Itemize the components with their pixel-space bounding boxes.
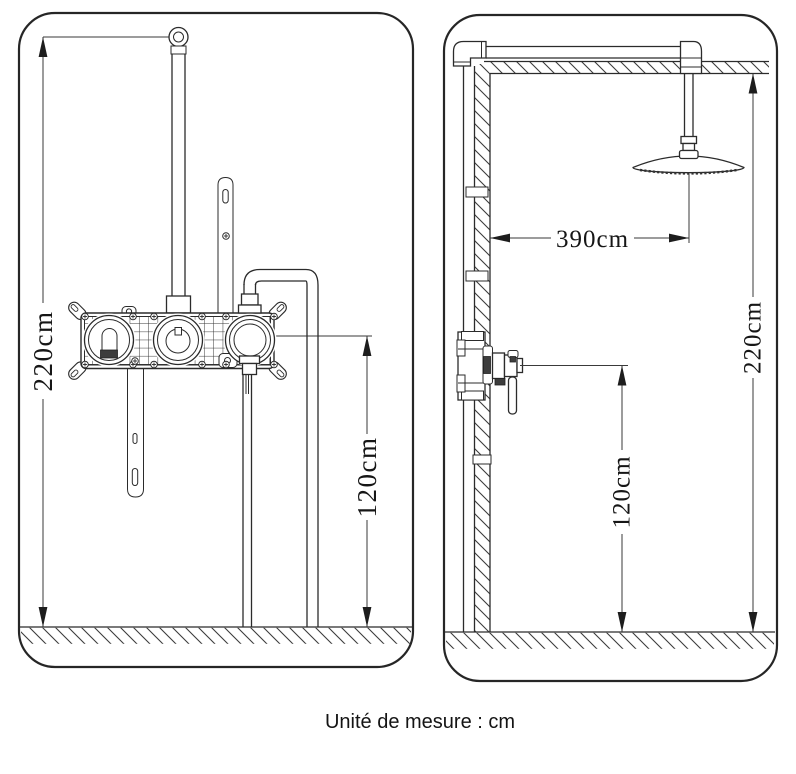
cartridge-dark xyxy=(484,357,491,374)
cartridge-stem xyxy=(102,329,117,353)
screw-icon xyxy=(199,313,206,320)
left-valve-port xyxy=(85,316,134,365)
side-dimension-valve-height: 120cm xyxy=(520,366,636,633)
screw-icon xyxy=(82,361,89,368)
screw-icon xyxy=(271,361,278,368)
screw-icon xyxy=(271,313,278,320)
pipe-clip xyxy=(473,455,491,464)
arrowhead-up-icon xyxy=(618,366,627,386)
valve-under-dark xyxy=(495,379,505,386)
elbow-inner xyxy=(306,281,307,286)
lower-strap xyxy=(128,368,144,497)
elbow-inner xyxy=(256,281,262,285)
valve-head-segment xyxy=(493,353,505,379)
pipe-coupling-base xyxy=(239,305,262,313)
side-dimension-total-height: 220cm xyxy=(740,74,767,633)
screw-icon xyxy=(223,233,230,240)
dimension-label-120: 120cm xyxy=(352,437,382,518)
dimension-label-390: 390cm xyxy=(556,226,629,253)
pipe-clip xyxy=(466,187,488,197)
arrowhead-up-icon xyxy=(749,74,758,94)
screw-icon xyxy=(223,313,230,320)
dimension-label-220: 220cm xyxy=(28,311,58,392)
arrowhead-left-icon xyxy=(490,234,510,243)
screw-icon xyxy=(151,313,158,320)
spindle-notch xyxy=(175,328,182,336)
screw-icon xyxy=(82,313,89,320)
riser-coupling xyxy=(167,296,191,313)
arrowhead-up-icon xyxy=(39,37,48,57)
unit-caption: Unité de mesure : cm xyxy=(325,711,515,733)
side-view-panel: 390cm 220cm 120cm xyxy=(444,15,777,681)
pipe-coupling xyxy=(242,294,259,305)
arrowhead-down-icon xyxy=(618,612,627,632)
diverter-dark xyxy=(510,357,516,363)
upper-strap xyxy=(218,178,233,314)
front-floor-hatch xyxy=(21,628,411,644)
elbow-outer xyxy=(244,270,260,286)
dimension-label-120: 120cm xyxy=(609,455,636,528)
valve-body-lug xyxy=(457,340,465,356)
riser-top-fitting xyxy=(169,28,188,47)
side-panel-border xyxy=(444,15,777,681)
arrowhead-down-icon xyxy=(39,607,48,627)
shower-riser-pipe xyxy=(167,28,191,314)
ceiling-hatch xyxy=(490,62,769,74)
arrowhead-down-icon xyxy=(363,607,372,627)
side-dimension-wall-to-head: 390cm xyxy=(490,174,689,253)
arrowhead-up-icon xyxy=(363,336,372,356)
dimension-label-220: 220cm xyxy=(740,301,767,374)
front-dimension-valve-height: 120cm xyxy=(274,336,382,627)
elbow-outer xyxy=(306,270,318,286)
hose-connector xyxy=(243,364,257,375)
arm-coupling xyxy=(683,144,695,151)
hand-shower-hose xyxy=(240,356,260,627)
technical-drawing-svg: 220cm 120cm xyxy=(0,0,796,774)
arrowhead-down-icon xyxy=(749,612,758,632)
wall-supply-pipe xyxy=(454,42,702,633)
hose-nut xyxy=(240,356,260,364)
rain-shower-head-assembly xyxy=(633,74,744,174)
screw-icon xyxy=(151,361,158,368)
riser-neck xyxy=(171,46,186,54)
side-floor-hatch xyxy=(446,633,774,649)
screw-icon xyxy=(132,358,139,365)
mixer-handle xyxy=(509,377,517,414)
front-view-panel: 220cm 120cm xyxy=(19,13,413,667)
head-connector-cap xyxy=(680,151,699,159)
middle-valve-port xyxy=(154,316,203,365)
installation-diagram: 220cm 120cm xyxy=(0,0,796,774)
pipe-clip xyxy=(466,271,488,281)
screw-icon xyxy=(199,361,206,368)
valve-body-cap xyxy=(462,332,484,341)
screw-icon xyxy=(223,361,230,368)
arm-coupling xyxy=(681,137,697,144)
screw-icon xyxy=(130,313,137,320)
cartridge-block xyxy=(101,350,118,358)
arrowhead-right-icon xyxy=(669,234,689,243)
